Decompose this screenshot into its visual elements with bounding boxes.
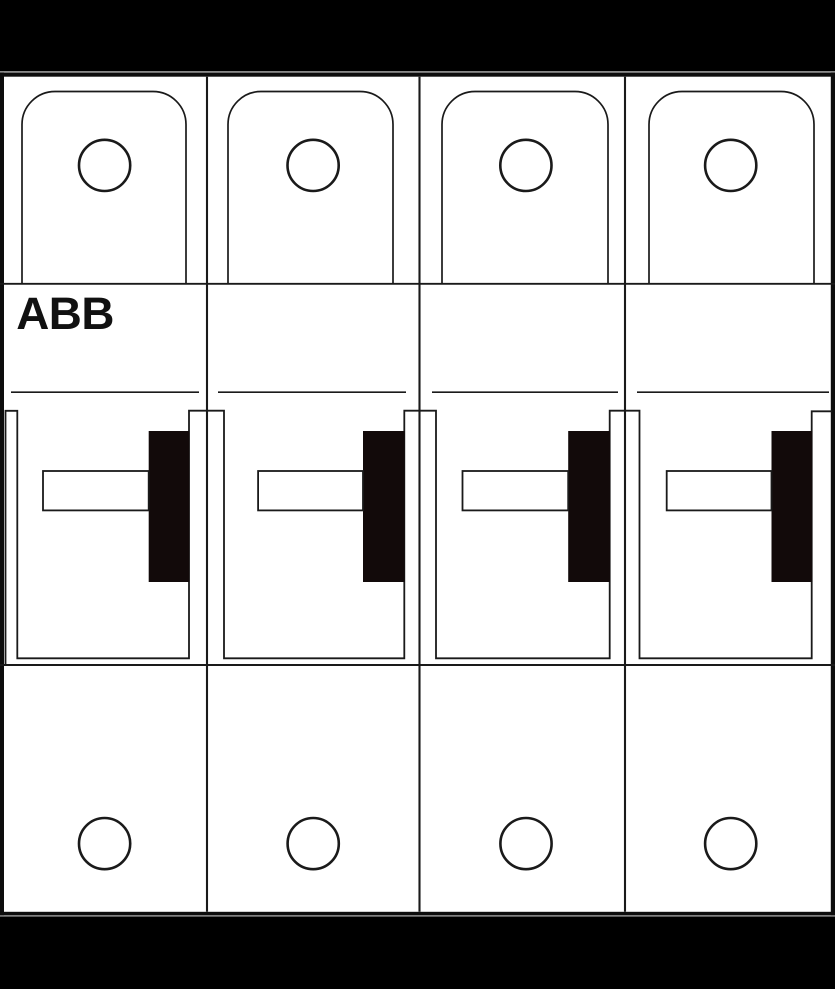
svg-text:ABB: ABB [16, 288, 114, 339]
